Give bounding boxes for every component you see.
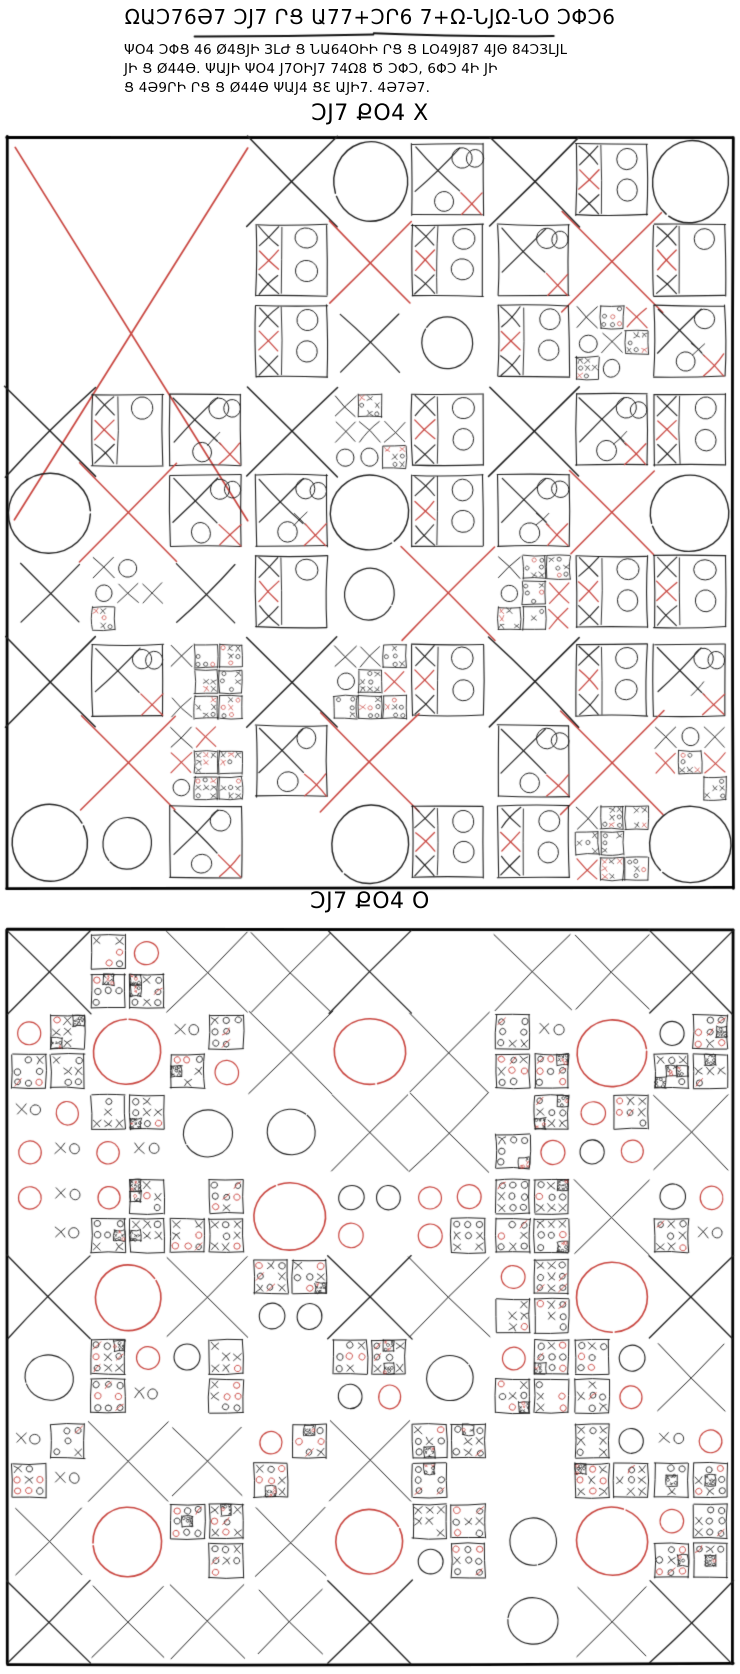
comic-subtitle: ΨO4 ƆΦՑ 46 Ø4ՑЈԻ ЗԼԺ Ց ՆԱ64ՕԻԻ ՐՑ Ց ԼՕ49… [124,41,567,98]
subtitle-line-2: ЈԻ Ց Ø44Ө. ΨԱЈԻ ΨO4 Ј7OԻЈ7 74Ω8 Ծ ƆΦƆ, 6… [124,60,567,79]
subtitle-line-3: Ց 4Ә9ՐԻ ՐՑ Ց Ø44Ө ΨԱЈ4 ՑƐ ԱЈԻ7. 4Ә7Ә7. [124,79,567,98]
map-x-label: ƆЈ7 ՔO4 X [0,101,740,126]
comic-title: ΩԱƆ76Ә7 ƆЈ7 ՐՑ Ա77+ƆՐ6 7+Ω-ՆЈΩ-ՆՕ ƆΦƆ6 [0,5,740,29]
subtitle-line-1: ΨO4 ƆΦՑ 46 Ø4ՑЈԻ ЗԼԺ Ց ՆԱ64ՕԻԻ ՐՑ Ց ԼՕ49… [124,41,567,60]
map-o-label: ƆЈ7 ՔO4 O [0,889,740,914]
tic-tac-toe-maps-canvas [0,0,740,1674]
